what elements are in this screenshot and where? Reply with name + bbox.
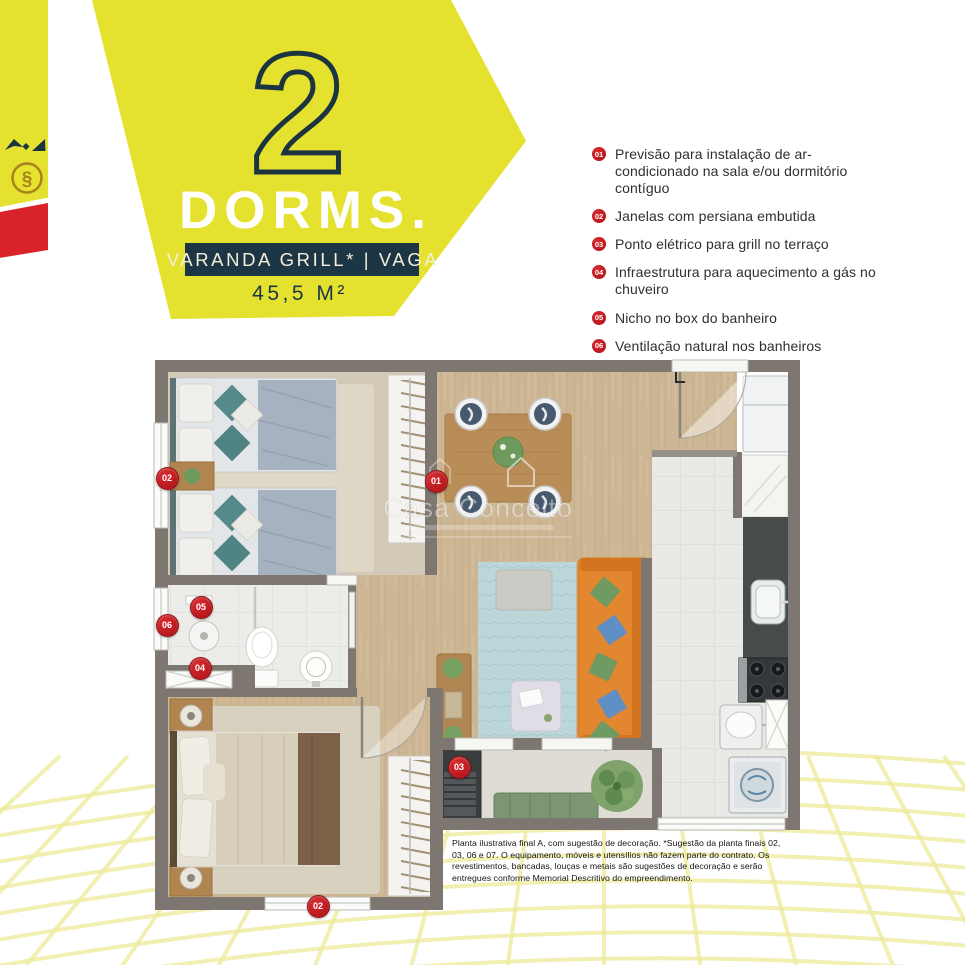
area-text: 45,5 M² [252,282,348,305]
seal-glyph: § [22,169,33,190]
bedroom1-door [327,575,357,585]
toilet [246,627,278,667]
bathroom-door [349,592,355,648]
legend-item-text: Ponto elétrico para grill no terraço [615,236,887,253]
twin-bed-2 [170,488,337,582]
watermark-subtext-bar [402,525,554,530]
legend-item-text: Infraestrutura para aquecimento a gás no… [615,264,887,298]
plant-icon [493,437,523,467]
kitchen-furniture [739,376,792,702]
plan-marker-05: 05 [190,596,213,619]
legend-badge: 03 [592,237,606,251]
ottoman [496,570,552,610]
birds-logo-icon [5,139,46,151]
plant-icon [184,468,200,484]
plan-marker-02: 02 [156,467,179,490]
legend-badge: 01 [592,147,606,161]
watermark-text: Casa Conceito [383,493,573,523]
chair [529,398,561,430]
plan-marker-04: 04 [189,657,212,680]
tagline-text: VARANDA GRILL* | VAGA [167,249,440,270]
counter [739,455,788,517]
legend-badge: 02 [592,209,606,223]
bathroom-sink [300,651,332,683]
legend-item-text: Janelas com persiana embutida [615,208,887,225]
legend-item: 03 Ponto elétrico para grill no terraço [592,236,902,253]
pillow [203,764,225,800]
plan-marker-02: 02 [307,895,330,918]
legend-badge: 04 [592,265,606,279]
side-strip-red [0,203,48,259]
sliding-door [542,738,612,750]
plan-disclaimer: Planta ilustrativa final A, com sugestão… [452,838,794,885]
plan-marker-03: 03 [448,756,471,779]
legend-item-text: Nicho no box do banheiro [615,310,887,327]
side-strip-logos: § [0,120,48,200]
legend-item: 05 Nicho no box do banheiro [592,310,902,327]
fridge [743,376,789,452]
floor-plan: Casa Conceito [150,355,810,920]
legend-item: 04 Infraestrutura para aquecimento a gás… [592,264,902,298]
plan-marker-01: 01 [425,470,448,493]
gold-seal-icon: § [13,164,42,193]
legend: 01 Previsão para instalação de ar-condic… [592,146,902,355]
dorms-label: DORMS. [179,181,433,240]
legend-badge: 06 [592,339,606,353]
legend-item: 01 Previsão para instalação de ar-condic… [592,146,902,197]
plant-icon [443,658,463,678]
entry-threshold [672,360,748,372]
legend-item-text: Ventilação natural nos banheiros [615,338,887,355]
legend-badge: 05 [592,311,606,325]
chair [455,398,487,430]
legend-item: 06 Ventilação natural nos banheiros [592,338,902,355]
title-banner: 2 DORMS. VARANDA GRILL* | VAGA 45,5 M² [60,0,540,340]
legend-item: 02 Janelas com persiana embutida [592,208,902,225]
legend-item-text: Previsão para instalação de ar-condicion… [615,146,887,197]
pillow [179,798,213,858]
sliding-door [455,738,513,750]
twin-bed-1 [170,378,337,472]
plan-marker-06: 06 [156,614,179,637]
